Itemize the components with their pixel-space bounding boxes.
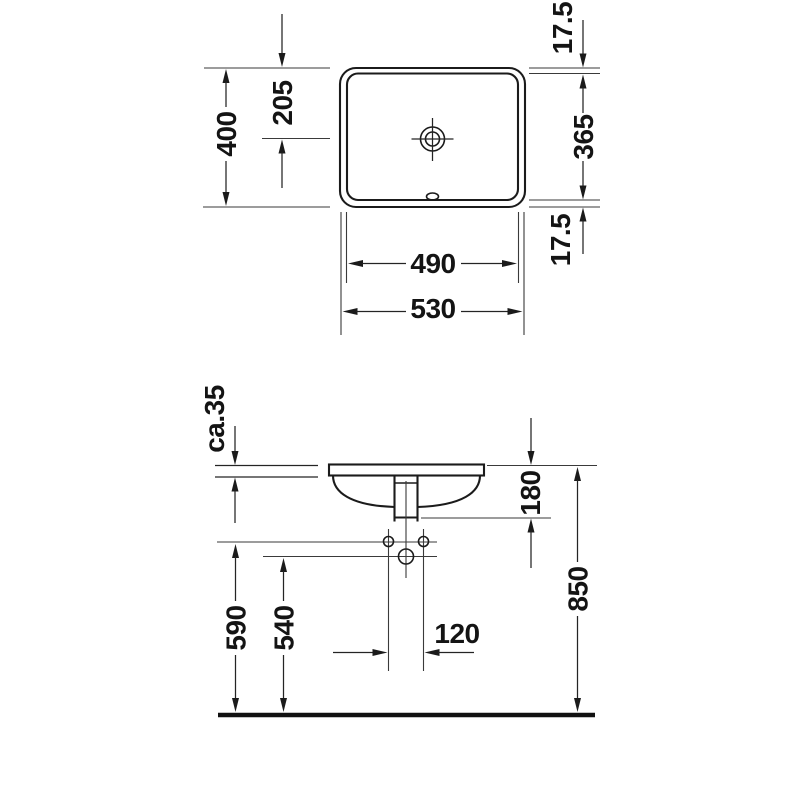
dim-hole-spacing: 120 <box>333 618 480 656</box>
arrowhead-right <box>508 308 523 315</box>
arrowhead-down <box>580 186 587 200</box>
dim-rim-height: 850 <box>562 467 593 712</box>
dim-label-365: 365 <box>568 114 599 159</box>
arrowhead-left <box>348 260 363 267</box>
dim-drain-line-height: 540 <box>268 558 299 712</box>
drawing-canvas: 400 205 17.5 365 17.5 <box>0 0 800 800</box>
arrowhead-up <box>528 519 535 533</box>
arrowhead-down <box>574 698 581 712</box>
arrowhead-up <box>574 467 581 481</box>
basin-profile <box>329 465 484 579</box>
arrowhead-down <box>232 451 239 465</box>
basin-rim-profile <box>329 465 484 476</box>
dim-overall-width: 530 <box>343 293 523 324</box>
dim-hole-line-height: 590 <box>220 544 251 712</box>
arrowhead-up <box>580 75 587 89</box>
dim-label-17-5-front: 17.5 <box>545 214 576 267</box>
countertop-lines <box>215 466 318 478</box>
arrowhead-down <box>279 53 286 67</box>
arrowhead-left <box>425 649 440 656</box>
dim-label-ca35: ca.35 <box>199 385 230 453</box>
arrowhead-down <box>580 54 587 68</box>
dim-basin-height: 180 <box>515 418 546 568</box>
dim-label-120: 120 <box>434 618 479 649</box>
dim-overall-depth: 400 <box>211 69 242 206</box>
dim-label-205: 205 <box>267 80 298 125</box>
dim-rim-back: 17.5 <box>547 2 587 68</box>
dim-label-540: 540 <box>268 605 299 650</box>
front-view: ca.35 180 850 590 <box>199 385 597 715</box>
arrowhead-up <box>223 69 230 83</box>
arrowhead-up <box>580 208 587 222</box>
dim-label-530: 530 <box>410 293 455 324</box>
top-view: 400 205 17.5 365 17.5 <box>203 2 600 335</box>
dim-label-490: 490 <box>410 248 455 279</box>
arrowhead-down <box>280 698 287 712</box>
technical-drawing: 400 205 17.5 365 17.5 <box>0 0 800 800</box>
arrowhead-up <box>232 478 239 492</box>
dim-basin-width: 490 <box>348 248 517 279</box>
arrowhead-up <box>279 140 286 154</box>
arrowhead-right <box>373 649 388 656</box>
arrowhead-left <box>343 308 358 315</box>
dim-counter-thickness: ca.35 <box>199 385 239 523</box>
arrowhead-up <box>232 544 239 558</box>
dim-rim-front: 17.5 <box>545 208 587 267</box>
dim-label-850: 850 <box>562 566 593 611</box>
arrowhead-down <box>223 192 230 206</box>
dim-label-17-5-back: 17.5 <box>547 2 578 55</box>
drain-symbol <box>412 118 454 161</box>
arrowhead-up <box>280 558 287 572</box>
arrowhead-down <box>528 451 535 465</box>
arrowhead-right <box>502 260 517 267</box>
dim-label-590: 590 <box>220 605 251 650</box>
dim-drain-offset: 205 <box>267 14 298 188</box>
arrowhead-down <box>232 698 239 712</box>
bowl-right-curve <box>418 476 481 508</box>
bowl-left-curve <box>333 476 395 508</box>
dim-label-180: 180 <box>515 470 546 515</box>
top-view-extension-lines <box>203 68 600 335</box>
dim-basin-depth: 365 <box>568 75 599 200</box>
dim-label-400: 400 <box>211 111 242 156</box>
